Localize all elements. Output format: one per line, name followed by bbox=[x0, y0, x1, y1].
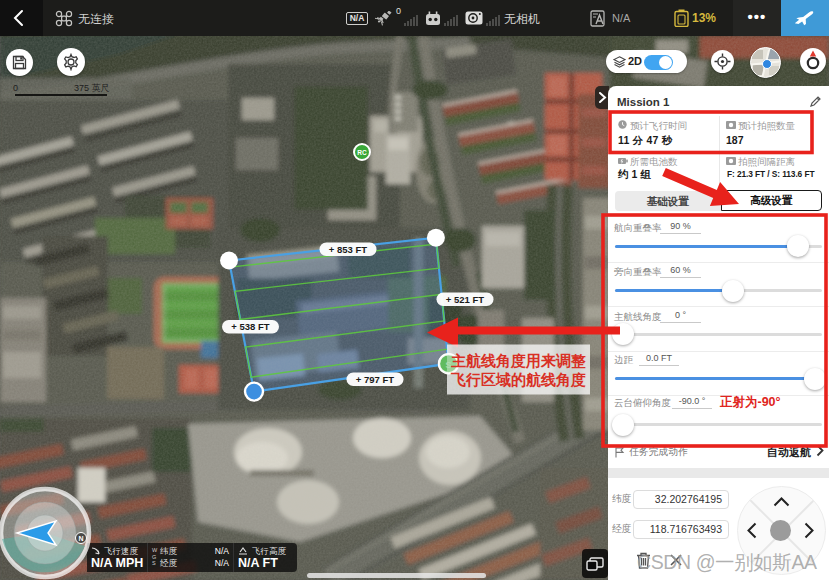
svg-text:375 英尺: 375 英尺 bbox=[74, 83, 110, 93]
svg-text:RC: RC bbox=[357, 149, 367, 156]
svg-text:N: N bbox=[78, 535, 83, 542]
svg-text:+ 853 FT: + 853 FT bbox=[329, 244, 367, 255]
svg-text:S: S bbox=[445, 360, 451, 370]
svg-text:0: 0 bbox=[13, 83, 18, 93]
svg-text:+ 797 FT: + 797 FT bbox=[356, 374, 394, 385]
svg-text:+ 521 FT: + 521 FT bbox=[446, 294, 484, 305]
svg-text:+ 538 FT: + 538 FT bbox=[231, 321, 269, 332]
